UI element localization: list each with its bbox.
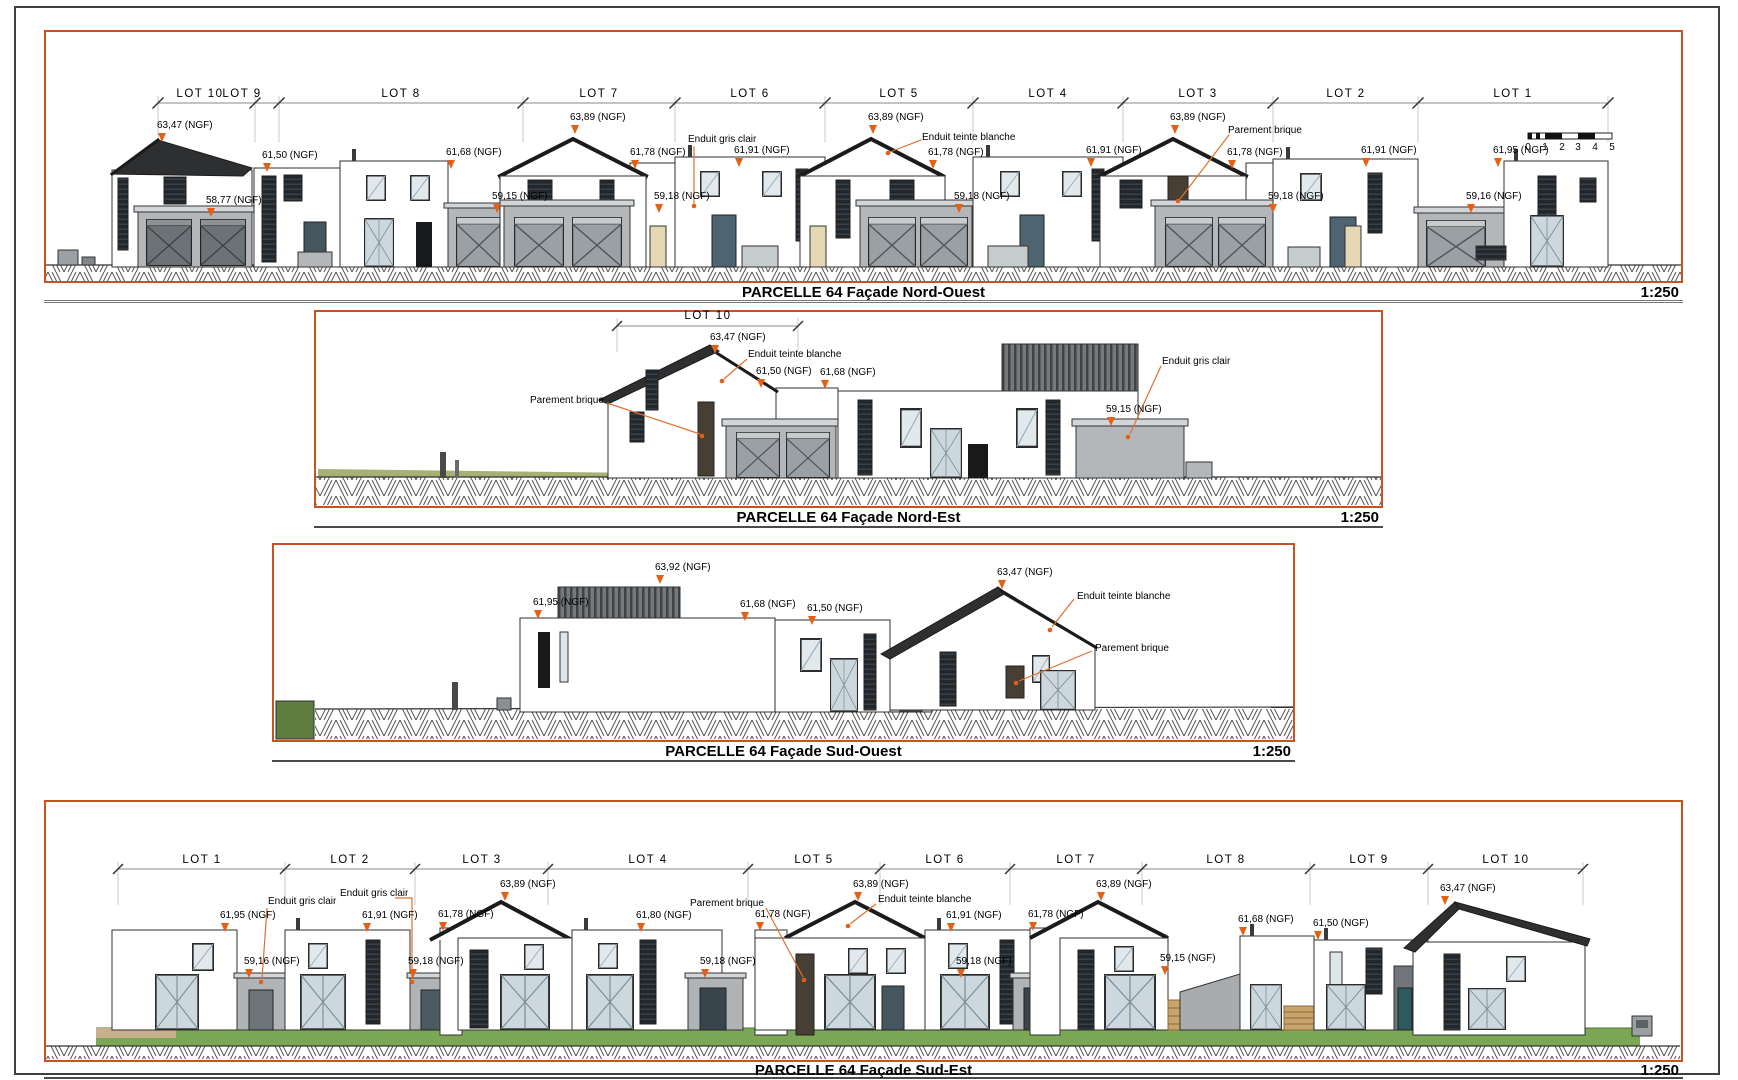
elevation-marker-icon — [869, 125, 877, 134]
material-annotation: Enduit teinte blanche — [748, 350, 841, 361]
scale-ruler-number: 2 — [1559, 142, 1565, 153]
elevation-marker-icon — [158, 133, 166, 142]
elevation-marker-icon — [656, 575, 664, 584]
elevation-annotation: 61,68 (NGF) — [740, 600, 796, 621]
material-annotation: Parement brique — [1228, 126, 1302, 137]
lot-label: LOT 2 — [1326, 88, 1365, 100]
scale-ruler-number: 0 — [1525, 142, 1531, 153]
lot-label: LOT 8 — [1206, 854, 1245, 866]
elevation-annotation: 61,78 (NGF) — [755, 910, 811, 931]
lot-label: LOT 9 — [1349, 854, 1388, 866]
elevation-annotation: 61,80 (NGF) — [636, 911, 692, 932]
elevation-marker-icon — [821, 380, 829, 389]
elevation-marker-icon — [439, 922, 447, 931]
elevation-marker-icon — [1314, 931, 1322, 940]
lot-label: LOT 1 — [1493, 88, 1532, 100]
elevation-marker-icon — [1467, 204, 1475, 213]
elevation-marker-icon — [756, 922, 764, 931]
elevation-marker-icon — [447, 160, 455, 169]
elevation-annotation: 63,89 (NGF) — [500, 880, 556, 901]
elevation-annotation: 63,89 (NGF) — [868, 113, 924, 134]
elevation-marker-icon — [998, 580, 1006, 589]
elevation-marker-icon — [534, 610, 542, 619]
material-annotation: Enduit teinte blanche — [1077, 592, 1170, 603]
elevation-marker-icon — [1171, 125, 1179, 134]
elevation-annotation: 61,78 (NGF) — [1227, 148, 1283, 169]
elevation-annotation: 63,89 (NGF) — [570, 113, 626, 134]
elevation-annotation: 61,95 (NGF) — [220, 911, 276, 932]
elevation-annotation: 61,50 (NGF) — [807, 604, 863, 625]
lot-label: LOT 2 — [330, 854, 369, 866]
panel-title: PARCELLE 64 Façade Sud-Ouest — [272, 743, 1295, 760]
elevation-marker-icon — [1239, 927, 1247, 936]
elevation-annotation: 61,50 (NGF) — [1313, 919, 1369, 940]
material-annotation: Enduit gris clair — [340, 889, 408, 900]
material-annotation: Enduit gris clair — [268, 897, 336, 908]
lot-label: LOT 7 — [1056, 854, 1095, 866]
elevation-marker-icon — [1494, 158, 1502, 167]
lot-label: LOT 4 — [628, 854, 667, 866]
elevation-marker-icon — [955, 204, 963, 213]
elevation-annotation: 58,77 (NGF) — [206, 196, 262, 217]
elevation-marker-icon — [637, 923, 645, 932]
elevation-annotation: 63,47 (NGF) — [157, 121, 213, 142]
elevation-sheet: PARCELLE 64 Façade Nord-Ouest 1:250 PARC… — [0, 0, 1738, 1080]
elevation-annotation: 63,92 (NGF) — [655, 563, 711, 584]
scale-ruler-number: 4 — [1592, 142, 1598, 153]
material-annotation: Parement brique — [690, 899, 764, 910]
panel-scale: 1:250 — [1641, 1062, 1679, 1079]
elevation-marker-icon — [1087, 158, 1095, 167]
lot-label: LOT 6 — [925, 854, 964, 866]
lot-label: LOT 5 — [794, 854, 833, 866]
lot-label: LOT 5 — [879, 88, 918, 100]
panel-scale: 1:250 — [1641, 284, 1679, 301]
elevation-marker-icon — [1269, 204, 1277, 213]
elevation-annotation: 61,78 (NGF) — [1028, 910, 1084, 931]
elevation-annotation: 63,47 (NGF) — [1440, 884, 1496, 905]
elevation-marker-icon — [735, 158, 743, 167]
scale-ruler-number: 3 — [1575, 142, 1581, 153]
elevation-marker-icon — [929, 160, 937, 169]
elevation-marker-icon — [757, 379, 765, 388]
material-annotation: Enduit gris clair — [1162, 357, 1230, 368]
lot-label: LOT 3 — [462, 854, 501, 866]
elevation-marker-icon — [711, 345, 719, 354]
elevation-marker-icon — [1107, 417, 1115, 426]
elevation-marker-icon — [221, 923, 229, 932]
elevation-annotation: 59,18 (NGF) — [1268, 192, 1324, 213]
panel-title: PARCELLE 64 Façade Nord-Est — [314, 509, 1383, 526]
panel-title: PARCELLE 64 Façade Sud-Est — [44, 1062, 1683, 1079]
elevation-marker-icon — [1029, 922, 1037, 931]
elevation-annotation: 59,18 (NGF) — [956, 957, 1012, 978]
elevation-annotation: 63,47 (NGF) — [997, 568, 1053, 589]
elevation-annotation: 63,89 (NGF) — [1170, 113, 1226, 134]
title-bar-sud-est: PARCELLE 64 Façade Sud-Est 1:250 — [44, 1062, 1683, 1079]
scale-ruler-number: 1 — [1542, 142, 1548, 153]
scale-ruler-number: 5 — [1609, 142, 1615, 153]
lot-label: LOT 10 — [176, 88, 223, 100]
material-annotation: Parement brique — [530, 396, 604, 407]
elevation-marker-icon — [957, 969, 965, 978]
material-annotation: Parement brique — [1095, 644, 1169, 655]
elevation-annotation: 61,91 (NGF) — [362, 911, 418, 932]
elevation-marker-icon — [1161, 966, 1169, 975]
elevation-annotation: 59,16 (NGF) — [244, 957, 300, 978]
elevation-annotation: 59,15 (NGF) — [1160, 954, 1216, 975]
elevation-marker-icon — [571, 125, 579, 134]
elevation-marker-icon — [1441, 896, 1449, 905]
elevation-marker-icon — [245, 969, 253, 978]
elevation-annotation: 61,68 (NGF) — [1238, 915, 1294, 936]
panel-title: PARCELLE 64 Façade Nord-Ouest — [44, 284, 1683, 301]
elevation-marker-icon — [501, 892, 509, 901]
title-bar-nord-est: PARCELLE 64 Façade Nord-Est 1:250 — [314, 509, 1383, 528]
elevation-marker-icon — [701, 969, 709, 978]
elevation-marker-icon — [263, 163, 271, 172]
elevation-annotation: 59,18 (NGF) — [408, 957, 464, 978]
elevation-annotation: 59,18 (NGF) — [954, 192, 1010, 213]
panel-facade-sud-est — [44, 800, 1683, 1062]
elevation-annotation: 61,78 (NGF) — [928, 148, 984, 169]
elevation-annotation: 61,68 (NGF) — [446, 148, 502, 169]
lot-label: LOT 8 — [381, 88, 420, 100]
lot-label: LOT 6 — [730, 88, 769, 100]
title-bar-sud-ouest: PARCELLE 64 Façade Sud-Ouest 1:250 — [272, 743, 1295, 762]
elevation-annotation: 59,18 (NGF) — [700, 957, 756, 978]
lot-label: LOT 10 — [684, 310, 731, 322]
elevation-marker-icon — [1097, 892, 1105, 901]
material-annotation: Enduit gris clair — [688, 135, 756, 146]
title-bar-nord-ouest: PARCELLE 64 Façade Nord-Ouest 1:250 — [44, 284, 1683, 303]
elevation-annotation: 61,91 (NGF) — [734, 146, 790, 167]
elevation-annotation: 61,50 (NGF) — [756, 367, 812, 388]
elevation-marker-icon — [493, 204, 501, 213]
panel-facade-nord-est — [314, 310, 1383, 508]
lot-label: LOT 3 — [1178, 88, 1217, 100]
elevation-marker-icon — [363, 923, 371, 932]
elevation-annotation: 61,50 (NGF) — [262, 151, 318, 172]
elevation-marker-icon — [631, 160, 639, 169]
elevation-marker-icon — [1228, 160, 1236, 169]
elevation-marker-icon — [409, 969, 417, 978]
elevation-marker-icon — [207, 208, 215, 217]
lot-label: LOT 4 — [1028, 88, 1067, 100]
material-annotation: Enduit teinte blanche — [878, 895, 971, 906]
elevation-marker-icon — [947, 923, 955, 932]
elevation-marker-icon — [741, 612, 749, 621]
elevation-annotation: 59,15 (NGF) — [1106, 405, 1162, 426]
elevation-annotation: 59,16 (NGF) — [1466, 192, 1522, 213]
elevation-marker-icon — [808, 616, 816, 625]
elevation-annotation: 61,91 (NGF) — [946, 911, 1002, 932]
lot-label: LOT 7 — [579, 88, 618, 100]
elevation-annotation: 61,78 (NGF) — [630, 148, 686, 169]
elevation-annotation: 59,15 (NGF) — [492, 192, 548, 213]
lot-label: LOT 10 — [1482, 854, 1529, 866]
elevation-annotation: 61,78 (NGF) — [438, 910, 494, 931]
panel-scale: 1:250 — [1341, 509, 1379, 526]
elevation-annotation: 61,91 (NGF) — [1086, 146, 1142, 167]
elevation-marker-icon — [655, 204, 663, 213]
elevation-marker-icon — [854, 892, 862, 901]
panel-scale: 1:250 — [1253, 743, 1291, 760]
elevation-annotation: 61,95 (NGF) — [1493, 146, 1549, 167]
material-annotation: Enduit teinte blanche — [922, 133, 1015, 144]
elevation-annotation: 59,18 (NGF) — [654, 192, 710, 213]
elevation-annotation: 63,89 (NGF) — [1096, 880, 1152, 901]
lot-label: LOT 1 — [182, 854, 221, 866]
elevation-annotation: 61,68 (NGF) — [820, 368, 876, 389]
elevation-annotation: 61,91 (NGF) — [1361, 146, 1417, 167]
elevation-annotation: 61,95 (NGF) — [533, 598, 589, 619]
elevation-marker-icon — [1362, 158, 1370, 167]
lot-label: LOT 9 — [222, 88, 261, 100]
